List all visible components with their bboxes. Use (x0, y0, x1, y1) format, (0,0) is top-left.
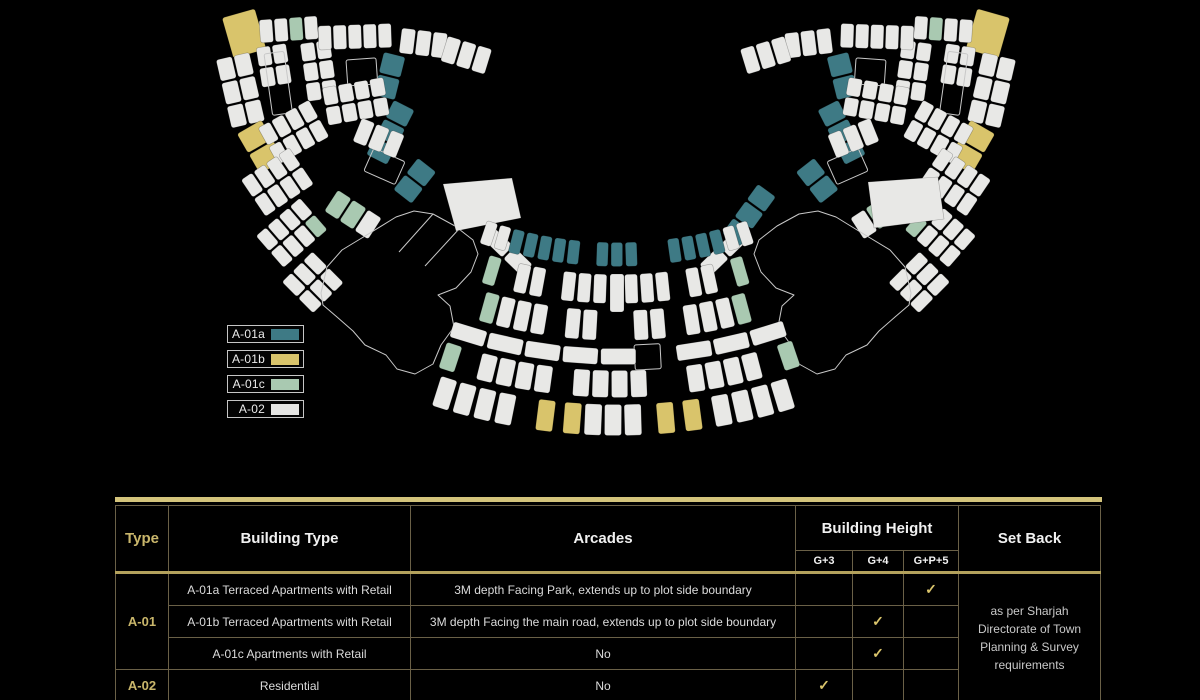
legend-color-swatch (271, 404, 299, 415)
regulations-table: Type Building Type Arcades Building Heig… (115, 497, 1102, 700)
masterplan-map (0, 0, 1200, 497)
arcades-cell: No (411, 670, 796, 700)
col-header-g4: G+4 (853, 551, 904, 573)
legend-color-swatch (271, 354, 299, 365)
col-header-type: Type (116, 506, 169, 573)
type-a02-cell: A-02 (116, 670, 169, 700)
legend-color-swatch (271, 329, 299, 340)
legend-item-a01a: A-01a (227, 325, 304, 343)
col-header-building-type: Building Type (169, 506, 411, 573)
table-row: A-01b Terraced Apartments with Retail 3M… (116, 606, 1101, 638)
legend-label: A-02 (239, 402, 265, 416)
col-header-g3: G+3 (796, 551, 853, 573)
table-row: A-01 A-01a Terraced Apartments with Reta… (116, 573, 1101, 606)
checkmark-cell-g4 (853, 670, 904, 700)
arcades-cell: 3M depth Facing the main road, extends u… (411, 606, 796, 638)
checkmark-cell-g4 (853, 573, 904, 606)
checkmark-cell-g3: ✓ (796, 670, 853, 700)
masterplan-page: A-01a A-01b A-01c A-02 Type (0, 0, 1200, 700)
table-row: A-01c Apartments with Retail No ✓ (116, 638, 1101, 670)
legend-color-swatch (271, 379, 299, 390)
building-type-cell: A-01c Apartments with Retail (169, 638, 411, 670)
set-back-cell: as per Sharjah Directorate of Town Plann… (959, 573, 1101, 700)
type-a01-cell: A-01 (116, 573, 169, 670)
checkmark-cell-gp5 (904, 606, 959, 638)
building-type-cell: Residential (169, 670, 411, 700)
col-header-set-back: Set Back (959, 506, 1101, 573)
legend-item-a01b: A-01b (227, 350, 304, 368)
checkmark-cell-g3 (796, 638, 853, 670)
checkmark-cell-g3 (796, 573, 853, 606)
checkmark-cell-gp5: ✓ (904, 573, 959, 606)
building-type-cell: A-01a Terraced Apartments with Retail (169, 573, 411, 606)
legend-item-a01c: A-01c (227, 375, 304, 393)
legend-item-a02: A-02 (227, 400, 304, 418)
arcades-cell: No (411, 638, 796, 670)
plan-legend: A-01a A-01b A-01c A-02 (227, 325, 304, 425)
checkmark-cell-g4: ✓ (853, 606, 904, 638)
legend-label: A-01c (233, 377, 265, 391)
checkmark-cell-gp5 (904, 670, 959, 700)
table-accent-bar (115, 497, 1102, 502)
legend-label: A-01a (232, 327, 265, 341)
table-row: A-02 Residential No ✓ (116, 670, 1101, 700)
arcades-cell: 3M depth Facing Park, extends up to plot… (411, 573, 796, 606)
legend-label: A-01b (232, 352, 265, 366)
checkmark-cell-gp5 (904, 638, 959, 670)
checkmark-cell-g3 (796, 606, 853, 638)
col-header-gp5: G+P+5 (904, 551, 959, 573)
checkmark-cell-g4: ✓ (853, 638, 904, 670)
col-header-arcades: Arcades (411, 506, 796, 573)
building-type-cell: A-01b Terraced Apartments with Retail (169, 606, 411, 638)
building-regulations: Type Building Type Arcades Building Heig… (115, 505, 1101, 700)
col-header-building-height: Building Height (796, 506, 959, 551)
